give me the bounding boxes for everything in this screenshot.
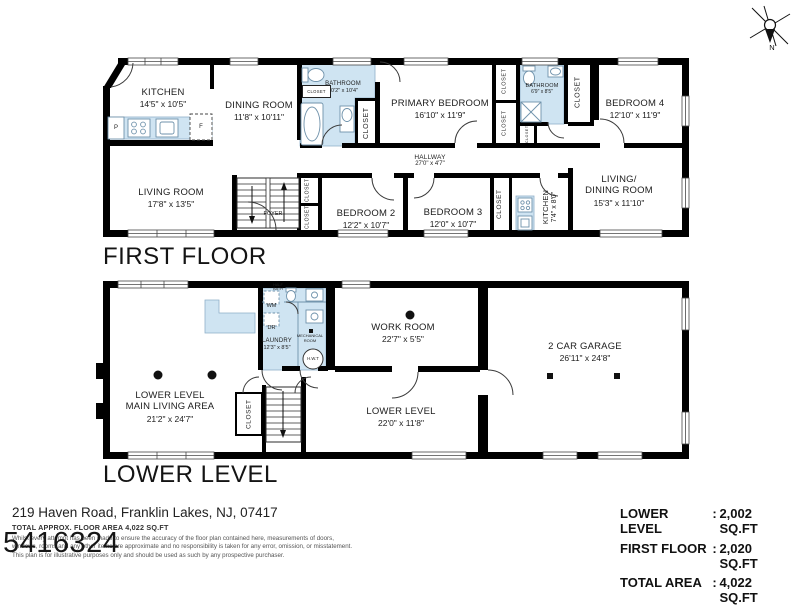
summary-row: LOWER LEVEL : 2,002 SQ.FT bbox=[620, 506, 792, 536]
lower-level-windows bbox=[118, 281, 689, 459]
closet-label: CLOSET bbox=[493, 64, 516, 99]
room-label-dining: DINING ROOM 11'8" x 10'11" bbox=[213, 98, 305, 124]
room-label-primary-bedroom: PRIMARY BEDROOM 16'10" x 11'9" bbox=[390, 96, 490, 122]
room-label-living-dining: LIVING/ DINING ROOM 15'3" x 11'10" bbox=[572, 172, 666, 210]
closet-label: CLOSET bbox=[297, 179, 318, 202]
closet-label: CLOSET bbox=[297, 205, 318, 229]
room-label-bedroom3: BEDROOM 3 12'0" x 10'7" bbox=[408, 205, 498, 231]
summary-label: FIRST FLOOR bbox=[620, 541, 710, 571]
summary-value: 2,020 SQ.FT bbox=[719, 541, 792, 571]
fridge-label: F bbox=[193, 120, 209, 134]
room-label-half-bath: HALF BATH bbox=[266, 282, 290, 292]
room-label-lower-level: LOWER LEVEL 22'0" x 11'8" bbox=[355, 404, 447, 430]
first-floor-title: FIRST FLOOR bbox=[103, 243, 267, 271]
pantry-label: P bbox=[108, 122, 124, 134]
summary-row: TOTAL AREA : 4,022 SQ.FT bbox=[620, 575, 792, 605]
room-label-bedroom2: BEDROOM 2 12'2" x 10'7" bbox=[321, 206, 411, 232]
hot-water-tank-label: H.W.T bbox=[302, 355, 324, 363]
room-label-bedroom4: BEDROOM 4 12'10" x 11'9" bbox=[589, 96, 681, 122]
floor-plan-canvas: KITCHEN 14'5" x 10'5" DINING ROOM 11'8" … bbox=[0, 0, 800, 565]
summary-value: 2,002 SQ.FT bbox=[719, 506, 792, 536]
summary-value: 4,022 SQ.FT bbox=[719, 575, 792, 605]
room-label-living-room: LIVING ROOM 17'8" x 13'5" bbox=[125, 185, 217, 211]
area-summary: LOWER LEVEL : 2,002 SQ.FT FIRST FLOOR : … bbox=[620, 506, 792, 610]
summary-row: FIRST FLOOR : 2,020 SQ.FT bbox=[620, 541, 792, 571]
lower-level-title: LOWER LEVEL bbox=[103, 461, 278, 489]
closet-label: CLOSET bbox=[493, 103, 516, 144]
washer-label: WM bbox=[262, 302, 281, 311]
closet-label: CLOSET bbox=[490, 180, 509, 228]
room-label-hallway: HALLWAY 27'0" x 4'7" bbox=[402, 151, 458, 171]
summary-separator: : bbox=[710, 541, 720, 571]
closet-label: CLOSET bbox=[566, 64, 590, 120]
summary-separator: : bbox=[710, 506, 720, 536]
room-label-bathroom2: BATHROOM 6'9" x 8'5" bbox=[517, 82, 567, 96]
room-label-mechanical: MECHANICAL ROOM bbox=[294, 333, 326, 345]
summary-separator: : bbox=[710, 575, 720, 605]
compass-icon bbox=[750, 6, 790, 46]
compass-north-label: N bbox=[766, 43, 778, 52]
dryer-label: DR bbox=[262, 324, 281, 333]
room-label-garage: 2 CAR GARAGE 26'11" x 24'8" bbox=[539, 339, 631, 365]
closet-label: CLOSET bbox=[302, 85, 331, 98]
mls-watermark: 5416324 bbox=[3, 527, 119, 560]
closet-label: CLOSET bbox=[238, 395, 260, 433]
room-label-lower-main: LOWER LEVEL MAIN LIVING AREA 21'2" x 24'… bbox=[118, 386, 222, 428]
closet-label: CLOSET bbox=[520, 127, 534, 142]
room-label-kitchen2: KITCHEN 7'4" x 8'0" bbox=[533, 177, 567, 237]
closet-label: CLOSET bbox=[356, 100, 377, 146]
first-floor-stairs bbox=[237, 178, 299, 228]
summary-label: TOTAL AREA bbox=[620, 575, 710, 605]
summary-label: LOWER LEVEL bbox=[620, 506, 710, 536]
room-label-foyer: FOYER bbox=[258, 210, 288, 219]
room-label-kitchen: KITCHEN 14'5" x 10'5" bbox=[117, 85, 209, 111]
room-label-work-room: WORK ROOM 22'7" x 5'5" bbox=[357, 320, 449, 346]
lower-level-walls bbox=[96, 281, 689, 459]
property-address: 219 Haven Road, Franklin Lakes, NJ, 0741… bbox=[12, 505, 278, 520]
